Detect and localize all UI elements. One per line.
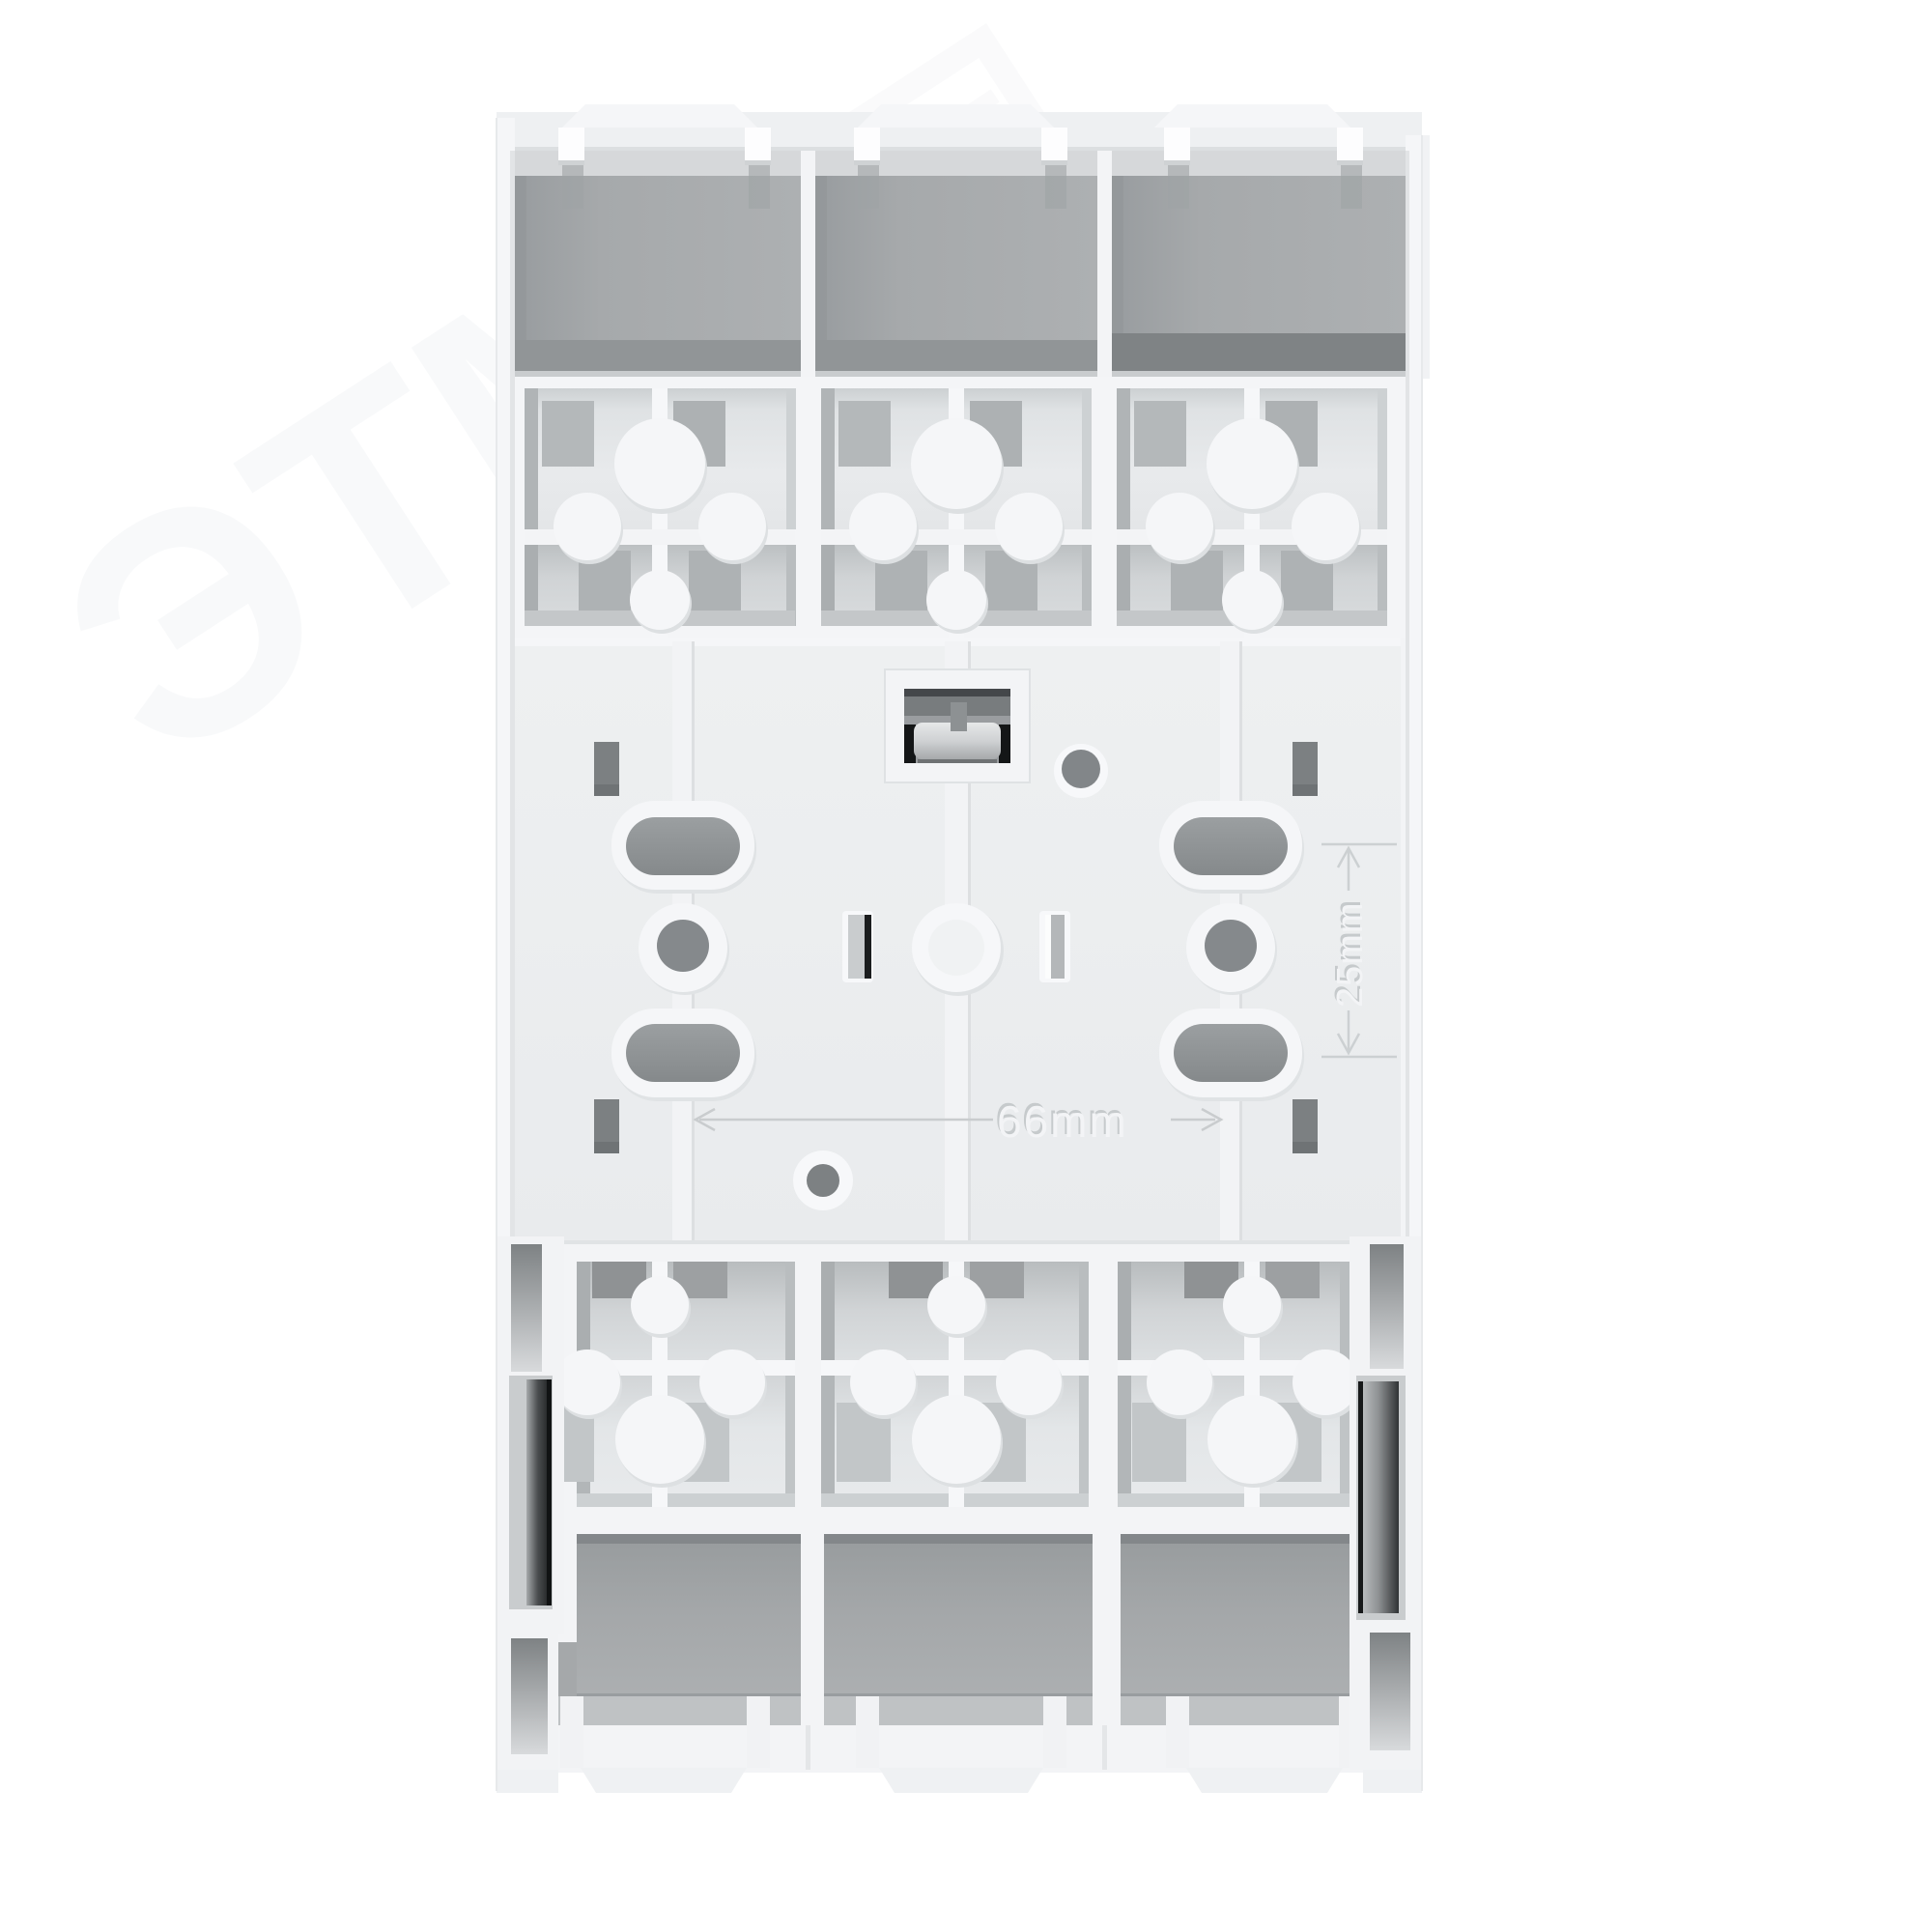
svg-text:25mm: 25mm [1330, 901, 1371, 1008]
svg-text:66mm: 66mm [997, 1096, 1128, 1147]
